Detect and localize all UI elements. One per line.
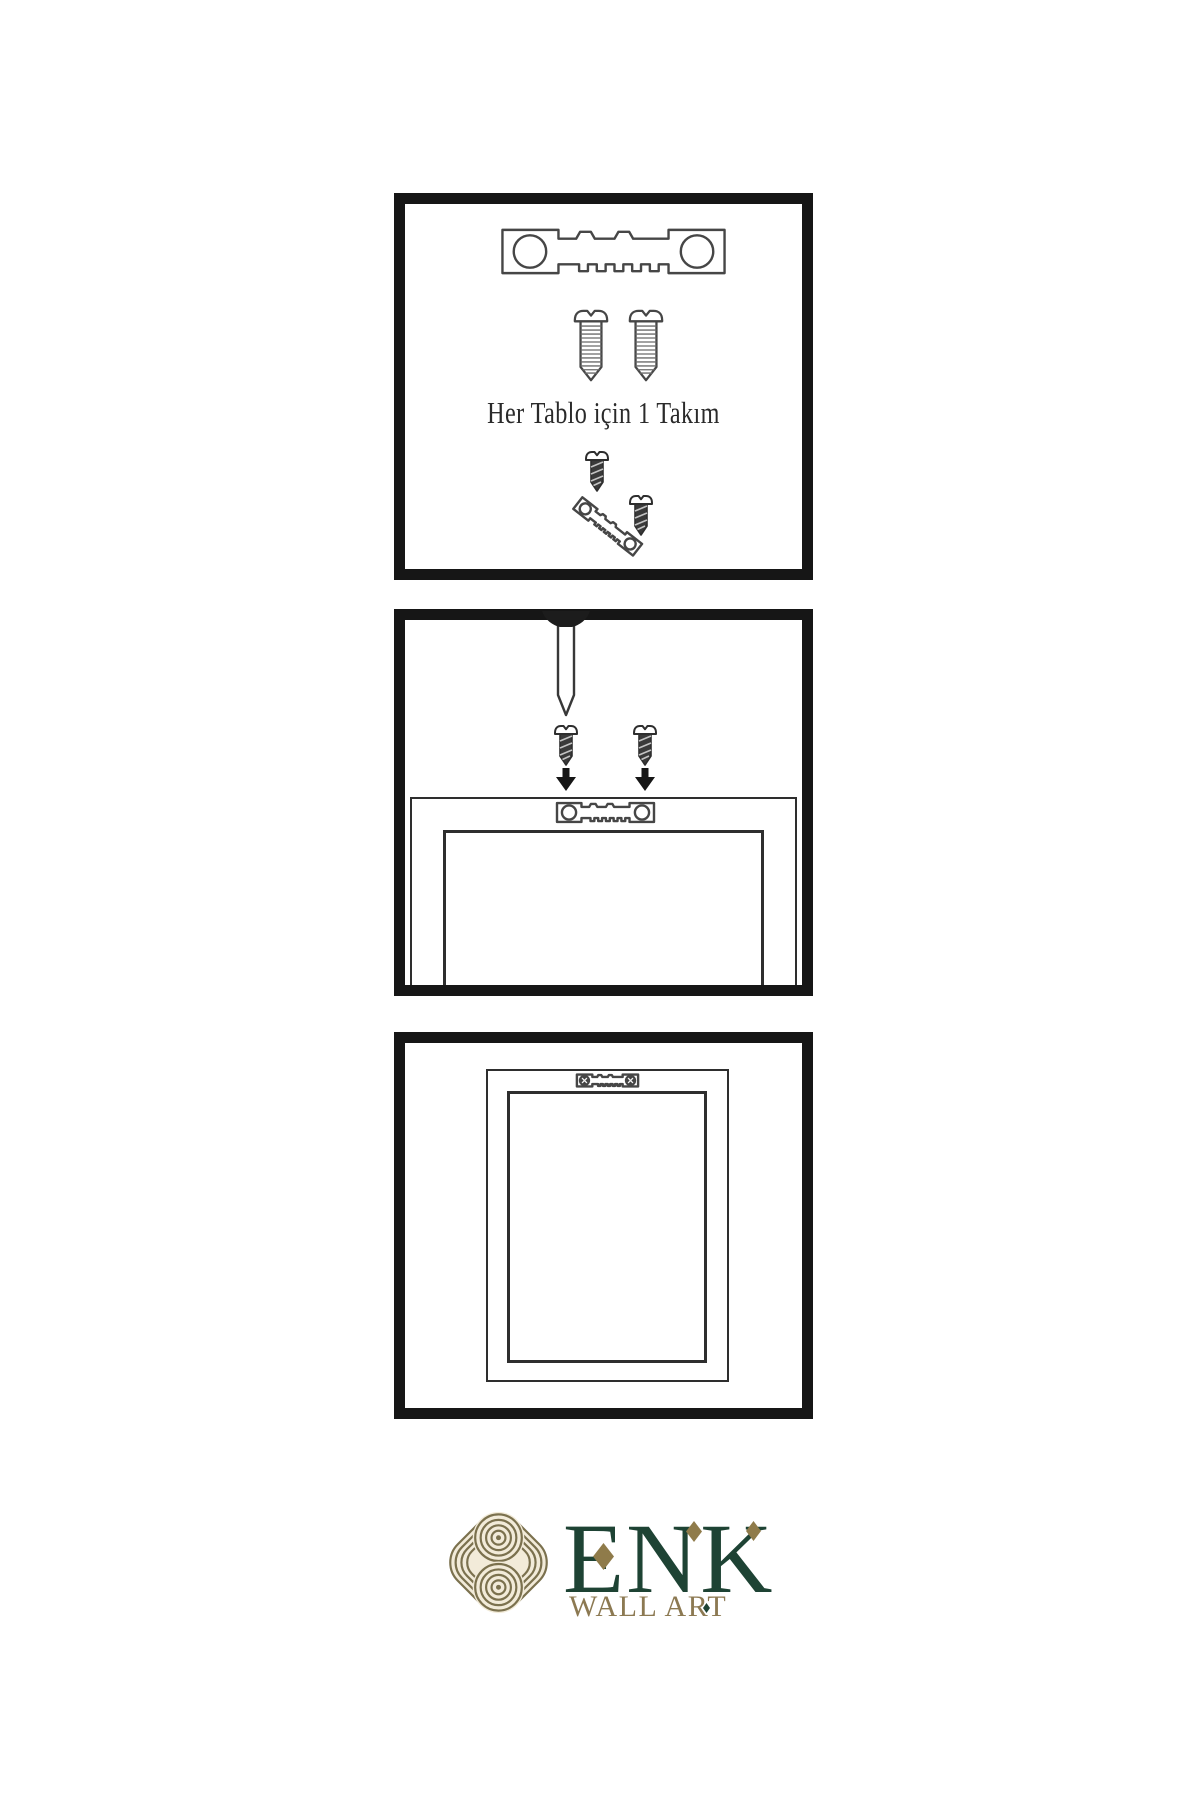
panel-mounting-steps bbox=[394, 609, 813, 996]
frame-inner-edge bbox=[443, 830, 764, 985]
down-arrow-icon bbox=[635, 768, 655, 791]
screw-icon bbox=[553, 724, 579, 770]
mounted-sawtooth-hanger-icon bbox=[575, 1072, 640, 1089]
brand-tagline: WALL ART bbox=[569, 1592, 727, 1622]
sawtooth-hanger-icon bbox=[554, 800, 657, 825]
screw-icon bbox=[632, 724, 658, 770]
knot-logo-icon bbox=[437, 1500, 560, 1625]
wall-nail-icon bbox=[542, 611, 590, 721]
kit-caption: Her Tablo için 1 Takım bbox=[449, 395, 759, 431]
down-arrow-icon bbox=[556, 768, 576, 791]
panel-hardware-kit: Her Tablo için 1 Takım bbox=[394, 193, 813, 580]
hanger-assembly-icon bbox=[568, 448, 660, 574]
sawtooth-hanger-icon bbox=[495, 223, 732, 280]
panel-framed-result bbox=[394, 1032, 813, 1419]
screw-icon bbox=[572, 308, 610, 384]
frame-inner-edge bbox=[507, 1091, 707, 1363]
screw-icon bbox=[627, 308, 665, 384]
